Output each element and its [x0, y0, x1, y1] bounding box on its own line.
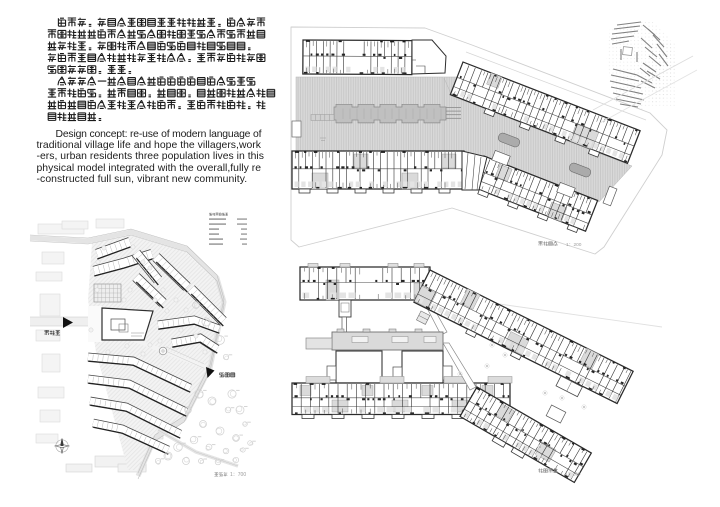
svg-text:1：700: 1：700: [230, 472, 246, 478]
svg-text:1：200: 1：200: [566, 242, 582, 248]
svg-text:1：200: 1：200: [565, 472, 581, 478]
